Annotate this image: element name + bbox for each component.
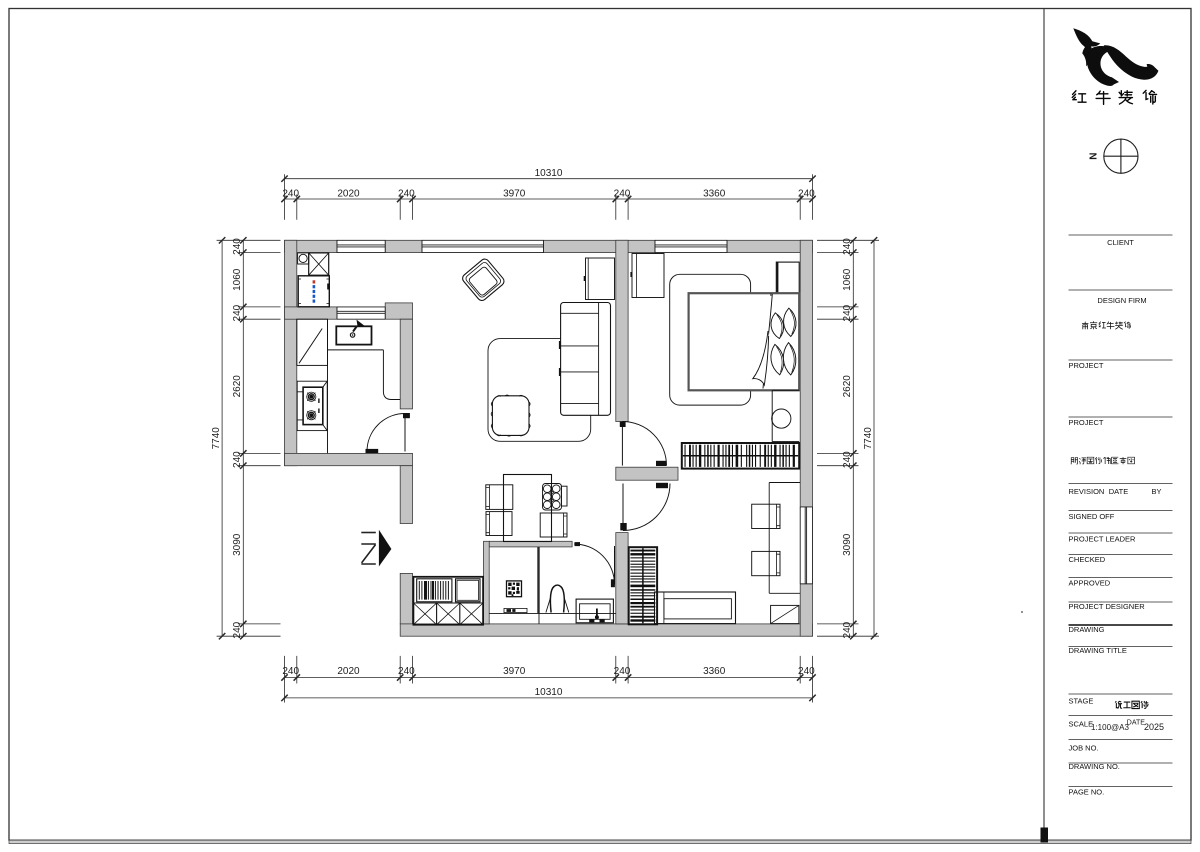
svg-text:SIGNED OFF: SIGNED OFF	[1069, 512, 1115, 521]
svg-text:3090: 3090	[232, 533, 243, 556]
svg-text:DRAWING: DRAWING	[1069, 625, 1105, 634]
svg-text:DRAWING TITLE: DRAWING TITLE	[1069, 646, 1127, 655]
svg-text:240: 240	[282, 188, 299, 199]
svg-text:240: 240	[232, 621, 243, 638]
svg-text:240: 240	[842, 304, 853, 321]
svg-text:240: 240	[842, 621, 853, 638]
svg-text:10310: 10310	[535, 687, 563, 698]
svg-text:APPROVED: APPROVED	[1069, 579, 1111, 588]
svg-text:DESIGN FIRM: DESIGN FIRM	[1097, 296, 1146, 305]
svg-text:240: 240	[232, 304, 243, 321]
svg-text:2620: 2620	[842, 375, 853, 398]
svg-text:3090: 3090	[842, 533, 853, 556]
svg-text:CLIENT: CLIENT	[1107, 238, 1134, 247]
svg-text:BY: BY	[1151, 487, 1161, 496]
svg-text:240: 240	[614, 666, 631, 677]
svg-text:240: 240	[842, 238, 853, 255]
svg-text:2020: 2020	[337, 188, 360, 199]
svg-text:240: 240	[398, 666, 415, 677]
svg-text:240: 240	[614, 188, 631, 199]
svg-text:PAGE NO.: PAGE NO.	[1069, 788, 1105, 797]
svg-text:DATE: DATE	[1109, 487, 1128, 496]
svg-text:JOB NO.: JOB NO.	[1069, 744, 1099, 753]
svg-text:PROJECT: PROJECT	[1069, 418, 1104, 427]
svg-text:3360: 3360	[703, 188, 726, 199]
svg-text:240: 240	[842, 451, 853, 468]
svg-text:1060: 1060	[232, 268, 243, 291]
svg-text:2620: 2620	[232, 375, 243, 398]
svg-text:1060: 1060	[842, 268, 853, 291]
svg-text:DATE: DATE	[1127, 720, 1145, 727]
svg-text:3360: 3360	[703, 666, 726, 677]
svg-text:240: 240	[398, 188, 415, 199]
svg-text:REVISION: REVISION	[1069, 487, 1105, 496]
svg-text:240: 240	[282, 666, 299, 677]
svg-text:N: N	[1089, 153, 1100, 160]
svg-text:2020: 2020	[337, 666, 360, 677]
svg-text:3970: 3970	[503, 188, 526, 199]
svg-text:7740: 7740	[863, 427, 874, 450]
svg-text:240: 240	[798, 188, 815, 199]
svg-text:240: 240	[798, 666, 815, 677]
svg-text:2025: 2025	[1144, 722, 1164, 732]
svg-text:7740: 7740	[211, 427, 222, 450]
svg-text:240: 240	[232, 451, 243, 468]
svg-text:1:100@A3: 1:100@A3	[1091, 723, 1129, 732]
svg-text:DRAWING NO.: DRAWING NO.	[1069, 762, 1120, 771]
svg-text:10310: 10310	[535, 168, 563, 179]
svg-text:STAGE: STAGE	[1069, 696, 1094, 705]
svg-text:PROJECT DESIGNER: PROJECT DESIGNER	[1069, 602, 1146, 611]
svg-text:PROJECT LEADER: PROJECT LEADER	[1069, 535, 1137, 544]
svg-text:PROJECT: PROJECT	[1069, 361, 1104, 370]
svg-text:SCALE: SCALE	[1069, 719, 1094, 728]
svg-text:240: 240	[232, 238, 243, 255]
svg-text:3970: 3970	[503, 666, 526, 677]
svg-text:CHECKED: CHECKED	[1069, 555, 1106, 564]
